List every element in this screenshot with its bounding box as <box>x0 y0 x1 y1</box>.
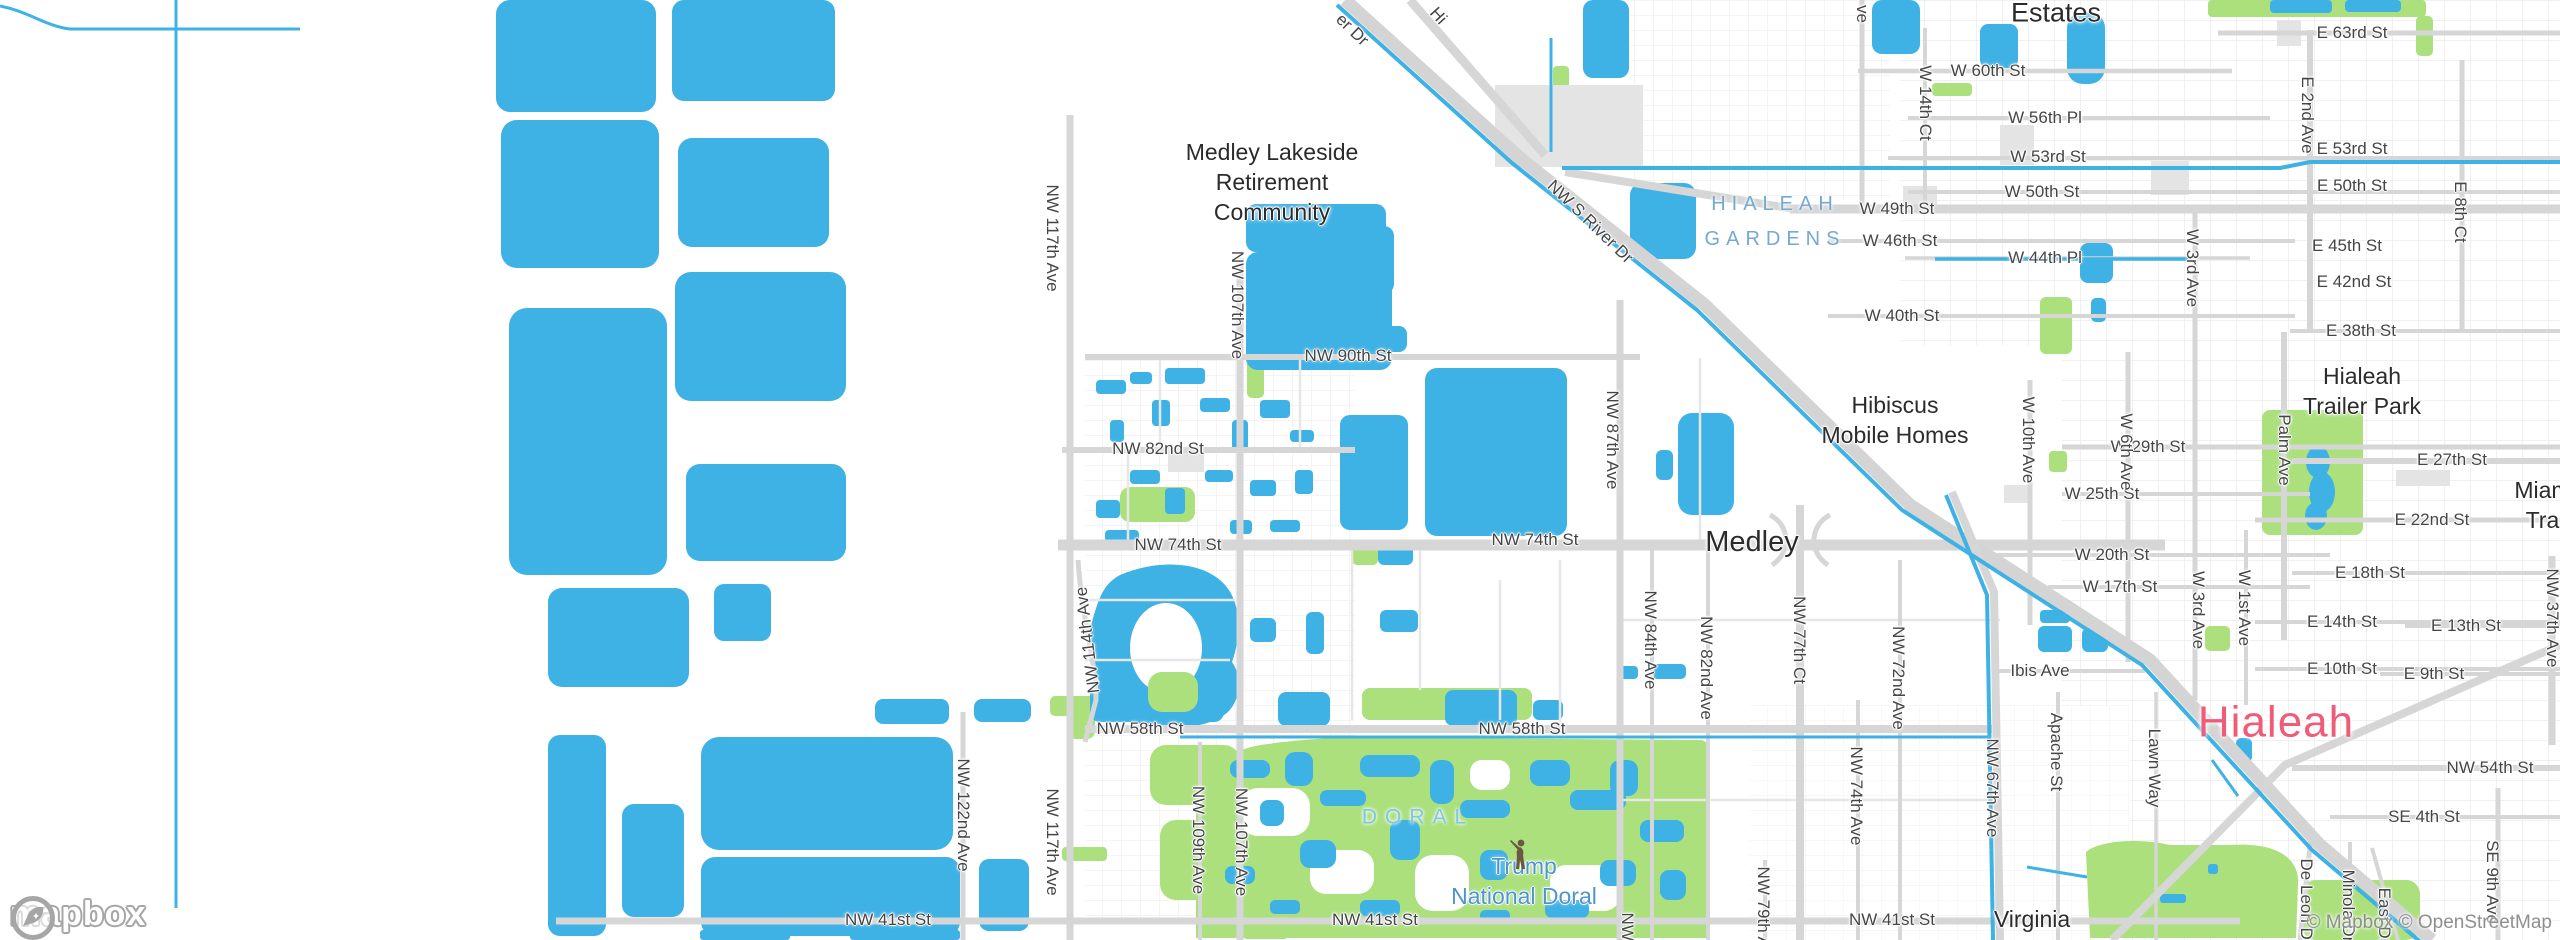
map-canvas[interactable]: E 63rd StW 60th StW 56th PlW 53rd StE 53… <box>0 0 2560 940</box>
mapbox-pin-icon <box>10 895 56 940</box>
map-graphics <box>0 0 2560 940</box>
mapbox-logo[interactable]: mapbox <box>10 895 146 934</box>
map-attribution[interactable]: © Mapbox © OpenStreetMap <box>2306 912 2552 934</box>
island-green <box>1148 672 1198 712</box>
